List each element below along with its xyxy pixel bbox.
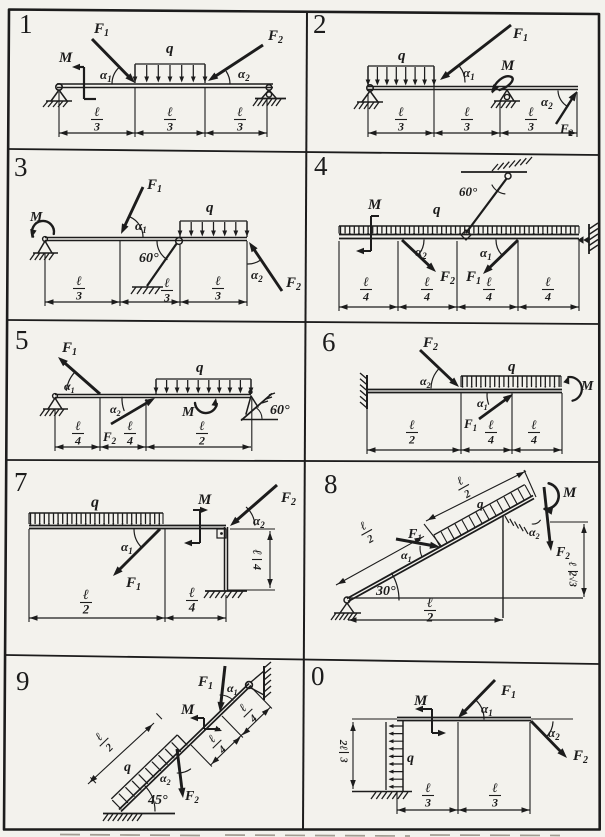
svg-text:4: 4 bbox=[314, 151, 328, 181]
svg-text:q: q bbox=[433, 202, 441, 218]
svg-text:60°: 60° bbox=[139, 251, 159, 266]
svg-text:q: q bbox=[206, 200, 214, 216]
svg-text:2: 2 bbox=[198, 434, 205, 448]
svg-text:3: 3 bbox=[463, 120, 470, 134]
svg-text:ℓ: ℓ bbox=[250, 549, 265, 555]
svg-text:2: 2 bbox=[313, 9, 327, 39]
svg-text:4: 4 bbox=[487, 433, 494, 447]
svg-text:60°: 60° bbox=[270, 403, 290, 418]
svg-text:3: 3 bbox=[424, 796, 431, 810]
svg-text:ℓ: ℓ bbox=[76, 273, 82, 288]
svg-text:ℓ: ℓ bbox=[363, 274, 369, 289]
svg-text:4: 4 bbox=[74, 434, 81, 448]
svg-text:q: q bbox=[477, 496, 484, 511]
svg-text:4: 4 bbox=[485, 290, 492, 304]
svg-text:ℓ: ℓ bbox=[492, 780, 498, 795]
svg-text:M: M bbox=[29, 210, 43, 225]
svg-text:ℓ: ℓ bbox=[425, 780, 431, 795]
svg-text:ℓ: ℓ bbox=[488, 417, 494, 432]
svg-text:ℓ: ℓ bbox=[127, 418, 133, 433]
svg-text:8: 8 bbox=[324, 469, 338, 499]
svg-text:M: M bbox=[562, 485, 577, 501]
svg-text:4: 4 bbox=[362, 290, 369, 304]
svg-text:ℓ: ℓ bbox=[424, 274, 430, 289]
svg-text:M: M bbox=[580, 379, 594, 394]
svg-text:4: 4 bbox=[530, 433, 537, 447]
svg-text:M: M bbox=[413, 693, 428, 709]
svg-text:ℓ: ℓ bbox=[486, 274, 492, 289]
svg-text:3: 3 bbox=[93, 120, 100, 134]
svg-text:0: 0 bbox=[311, 661, 325, 691]
svg-text:1: 1 bbox=[19, 9, 33, 39]
svg-text:3: 3 bbox=[166, 120, 173, 134]
svg-text:3: 3 bbox=[14, 152, 28, 182]
svg-text:ℓ: ℓ bbox=[215, 273, 221, 288]
svg-text:3: 3 bbox=[397, 120, 404, 134]
svg-text:ℓ: ℓ bbox=[531, 417, 537, 432]
svg-text:4: 4 bbox=[126, 434, 133, 448]
svg-text:2ℓ: 2ℓ bbox=[337, 739, 349, 751]
svg-text:ℓ: ℓ bbox=[237, 104, 243, 119]
svg-text:3: 3 bbox=[527, 120, 534, 134]
svg-text:45°: 45° bbox=[147, 793, 168, 808]
svg-text:5: 5 bbox=[15, 325, 29, 355]
svg-text:6: 6 bbox=[322, 327, 336, 357]
svg-text:q: q bbox=[91, 494, 99, 511]
svg-text:30°: 30° bbox=[375, 584, 396, 599]
svg-text:q: q bbox=[196, 360, 204, 376]
svg-text:q: q bbox=[124, 760, 131, 775]
svg-text:q: q bbox=[398, 48, 406, 64]
svg-text:3: 3 bbox=[491, 796, 498, 810]
svg-text:2: 2 bbox=[82, 602, 90, 617]
svg-text:3: 3 bbox=[214, 289, 221, 303]
svg-text:3: 3 bbox=[338, 757, 349, 763]
svg-text:ℓ: ℓ bbox=[398, 104, 404, 119]
svg-text:M: M bbox=[58, 50, 73, 66]
svg-text:2: 2 bbox=[426, 610, 434, 625]
svg-text:2: 2 bbox=[408, 433, 415, 447]
svg-text:M: M bbox=[197, 492, 212, 508]
svg-text:ℓ: ℓ bbox=[199, 418, 205, 433]
svg-text:3: 3 bbox=[75, 289, 82, 303]
svg-text:4: 4 bbox=[188, 600, 196, 615]
svg-text:ℓ: ℓ bbox=[528, 104, 534, 119]
svg-text:2√3: 2√3 bbox=[567, 570, 578, 587]
svg-text:ℓ: ℓ bbox=[409, 417, 415, 432]
svg-text:3: 3 bbox=[163, 291, 170, 305]
svg-text:7: 7 bbox=[14, 467, 28, 497]
svg-text:4: 4 bbox=[544, 290, 551, 304]
svg-text:M: M bbox=[367, 197, 382, 213]
svg-text:ℓ: ℓ bbox=[164, 275, 170, 290]
svg-text:M: M bbox=[181, 405, 195, 420]
svg-text:M: M bbox=[180, 702, 195, 718]
svg-text:ℓ: ℓ bbox=[75, 418, 81, 433]
svg-text:ℓ: ℓ bbox=[167, 104, 173, 119]
svg-text:4: 4 bbox=[423, 290, 430, 304]
svg-text:9: 9 bbox=[16, 666, 30, 696]
svg-text:M: M bbox=[500, 58, 515, 74]
svg-text:q: q bbox=[407, 751, 414, 766]
svg-text:ℓ: ℓ bbox=[545, 274, 551, 289]
svg-text:q: q bbox=[508, 359, 516, 375]
svg-text:q: q bbox=[166, 41, 174, 57]
svg-text:ℓ: ℓ bbox=[464, 104, 470, 119]
svg-text:3: 3 bbox=[236, 120, 243, 134]
svg-text:ℓ: ℓ bbox=[94, 104, 100, 119]
svg-text:4: 4 bbox=[251, 563, 265, 570]
svg-text:ℓ: ℓ bbox=[566, 562, 578, 567]
svg-text:60°: 60° bbox=[459, 184, 478, 199]
